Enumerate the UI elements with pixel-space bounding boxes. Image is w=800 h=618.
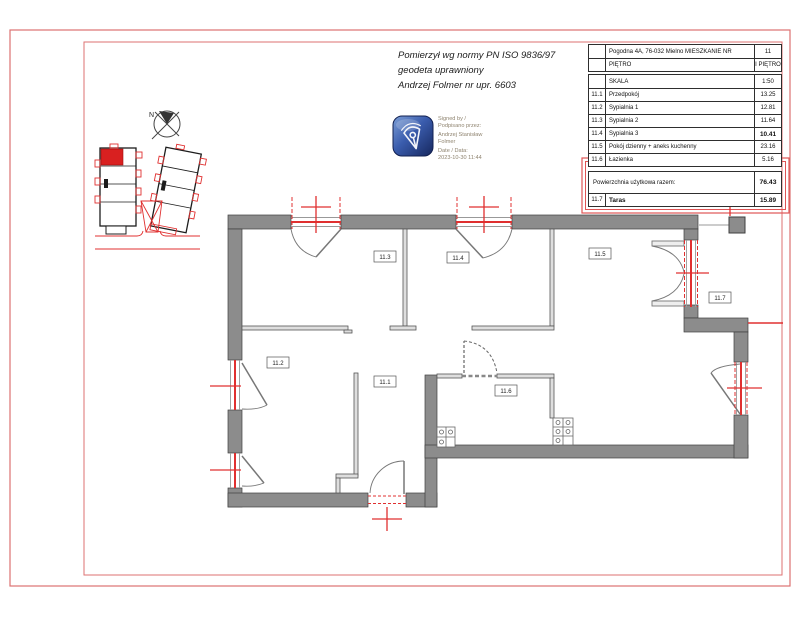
highlighted-unit xyxy=(101,149,123,165)
surveyor-note-line1: Pomierzył wg normy PN ISO 9836/97 xyxy=(398,48,608,63)
room-label-11-6: 11.6 xyxy=(495,385,517,396)
table-row-room: 11.2 Sypialnia 1 12.81 xyxy=(589,101,781,114)
kitchen-fixture xyxy=(437,418,573,447)
signature-stamp xyxy=(392,115,434,157)
svg-text:11.4: 11.4 xyxy=(452,256,464,262)
room-label-11-4: 11.4 xyxy=(447,252,469,263)
bathroom-door xyxy=(462,341,497,376)
table-rooms-box: SKALA 1:50 11.1 Przedpokój 13.25 11.2 Sy… xyxy=(588,74,782,167)
table-row-room: 11.4 Sypialnia 3 10.41 xyxy=(589,127,781,140)
outer-walls xyxy=(228,215,748,507)
floor-plan: 11.3 11.4 11.5 11.2 11.1 11.6 11.7 xyxy=(210,196,783,531)
table-row-total: Powierzchnia użytkowa razem: 76.43 xyxy=(589,172,781,193)
north-arrow-icon: N xyxy=(149,111,180,139)
scale-label-cell: SKALA xyxy=(606,75,755,88)
building-right xyxy=(145,141,208,237)
signature-line: Folmer xyxy=(438,139,518,146)
surveyor-note-line2: geodeta uprawniony xyxy=(398,63,608,78)
building-left xyxy=(95,144,142,234)
dimension-marks xyxy=(210,196,783,531)
svg-text:11.1: 11.1 xyxy=(379,380,391,386)
room-label-11-3: 11.3 xyxy=(374,251,396,262)
table-summary-box: Powierzchnia użytkowa razem: 76.43 11.7 … xyxy=(588,171,782,207)
left-window-a xyxy=(231,360,268,410)
table-row-room: 11.3 Sypialnia 2 11.64 xyxy=(589,114,781,127)
total-value-cell: 76.43 xyxy=(755,172,781,193)
site-plan: N xyxy=(95,111,208,249)
total-label-cell: Powierzchnia użytkowa razem: xyxy=(589,172,755,193)
room-label-11-7: 11.7 xyxy=(709,292,731,303)
table-row-address: Pogodna 4A, 76-032 Mielno MIESZKANIE NR … xyxy=(589,45,781,58)
table-row-room: 11.6 Łazienka 5.16 xyxy=(589,153,781,166)
svg-text:11.3: 11.3 xyxy=(379,255,391,261)
signature-line: Signed by / xyxy=(438,116,518,123)
row-num-cell xyxy=(589,45,606,58)
table-row-room: 11.5 Pokój dzienny + aneks kuchenny 23.1… xyxy=(589,140,781,153)
svg-text:11.2: 11.2 xyxy=(272,361,284,367)
svg-text:11.6: 11.6 xyxy=(500,389,512,395)
address-cell: Pogodna 4A, 76-032 Mielno MIESZKANIE NR xyxy=(606,45,755,58)
signature-line: Andrzej Stanisław xyxy=(438,132,518,139)
room-label-11-1: 11.1 xyxy=(374,376,396,387)
apartment-no-cell: 11 xyxy=(755,45,781,58)
terrace-column xyxy=(729,217,745,233)
signature-line: 2023-10-30 11:44 xyxy=(438,155,518,162)
table-header-box: Pogodna 4A, 76-032 Mielno MIESZKANIE NR … xyxy=(588,44,782,72)
table-row-terrace: 11.7 Taras 15.89 xyxy=(589,193,781,206)
row-num-cell xyxy=(589,59,606,71)
floor-value-cell: I PIĘTRO xyxy=(755,59,781,71)
svg-text:11.5: 11.5 xyxy=(594,252,606,258)
scale-value-cell: 1:50 xyxy=(755,75,781,88)
surveyor-note-line3: Andrzej Folmer nr upr. 6603 xyxy=(398,78,608,93)
table-row-room: 11.1 Przedpokój 13.25 xyxy=(589,88,781,101)
room-label-11-2: 11.2 xyxy=(267,357,289,368)
entrance-door xyxy=(370,461,404,494)
table-row-floor: PIĘTRO I PIĘTRO xyxy=(589,58,781,71)
row-num-cell xyxy=(589,75,606,88)
room-label-11-5: 11.5 xyxy=(589,248,611,259)
signature-text: Signed by / Podpisano przez: Andrzej Sta… xyxy=(438,116,518,162)
signature-line: Podpisano przez: xyxy=(438,123,518,130)
signature-line: Date / Data: xyxy=(438,148,518,155)
north-label: N xyxy=(149,112,154,119)
apartment-table: Pogodna 4A, 76-032 Mielno MIESZKANIE NR … xyxy=(588,44,782,207)
document-page: { "page": { "measure_note": ["Pomierzył … xyxy=(0,0,800,618)
surveyor-note: Pomierzył wg normy PN ISO 9836/97 geodet… xyxy=(398,48,608,93)
svg-text:11.7: 11.7 xyxy=(714,296,726,302)
table-row-scale: SKALA 1:50 xyxy=(589,75,781,88)
floor-label-cell: PIĘTRO xyxy=(606,59,755,71)
